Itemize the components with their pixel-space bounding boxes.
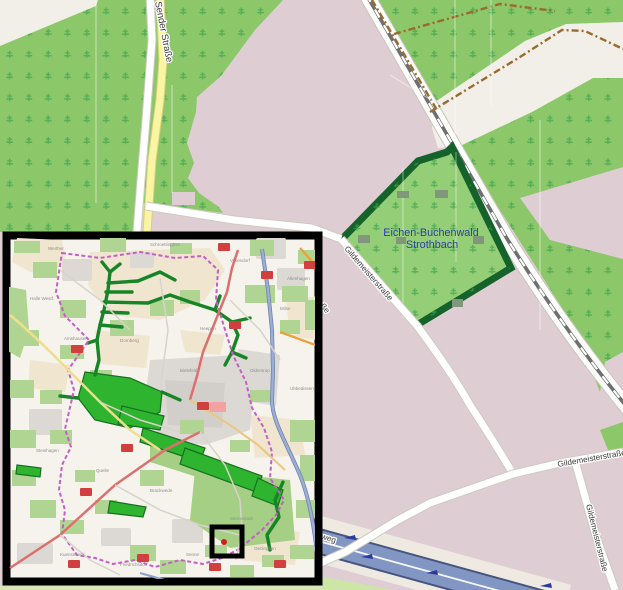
svg-text:Bielefeld: Bielefeld: [180, 368, 198, 373]
svg-text:Sennestadt: Sennestadt: [230, 516, 254, 521]
svg-text:Amshausen: Amshausen: [64, 336, 88, 341]
svg-text:Eichen-Buchenwald: Eichen-Buchenwald: [383, 227, 478, 239]
svg-text:Friedrichsdorf: Friedrichsdorf: [120, 562, 148, 567]
svg-text:Kuensebeck: Kuensebeck: [60, 552, 86, 557]
svg-text:Heepen: Heepen: [200, 326, 216, 331]
svg-text:Senne: Senne: [186, 552, 200, 557]
svg-text:Quelle: Quelle: [96, 468, 110, 473]
svg-text:Brackwede: Brackwede: [150, 488, 173, 493]
svg-text:Schroettinghsn: Schroettinghsn: [150, 242, 181, 247]
svg-text:Ubbedissen: Ubbedissen: [290, 386, 314, 391]
svg-text:Dornberg: Dornberg: [120, 338, 139, 343]
svg-text:Strothbach: Strothbach: [406, 239, 458, 251]
svg-text:Werther: Werther: [48, 246, 64, 251]
svg-text:Oerlinghsn: Oerlinghsn: [254, 546, 276, 551]
svg-text:Vilsendorf: Vilsendorf: [230, 258, 251, 263]
svg-text:Halle Westf.: Halle Westf.: [30, 296, 54, 301]
svg-text:Milse: Milse: [280, 306, 291, 311]
svg-text:Steinhagen: Steinhagen: [36, 448, 59, 453]
svg-text:Altenhagen: Altenhagen: [287, 276, 310, 281]
svg-text:Oldentrup: Oldentrup: [250, 368, 270, 373]
